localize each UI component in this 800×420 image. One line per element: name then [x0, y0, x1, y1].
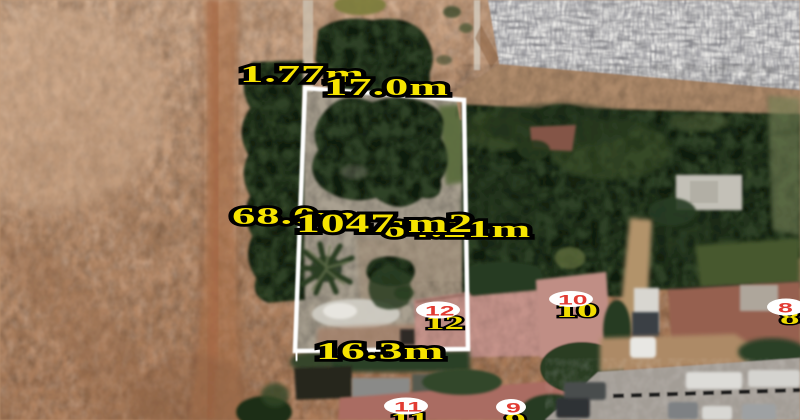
svg-text:17.0m: 17.0m [324, 74, 449, 101]
svg-text:16.3m: 16.3m [316, 338, 444, 365]
svg-text:1047 m2: 1047 m2 [296, 209, 473, 238]
svg-text:9: 9 [506, 400, 521, 416]
svg-text:12: 12 [425, 303, 455, 319]
svg-text:8: 8 [778, 300, 793, 316]
svg-text:11: 11 [394, 399, 422, 415]
svg-text:10: 10 [558, 292, 588, 308]
